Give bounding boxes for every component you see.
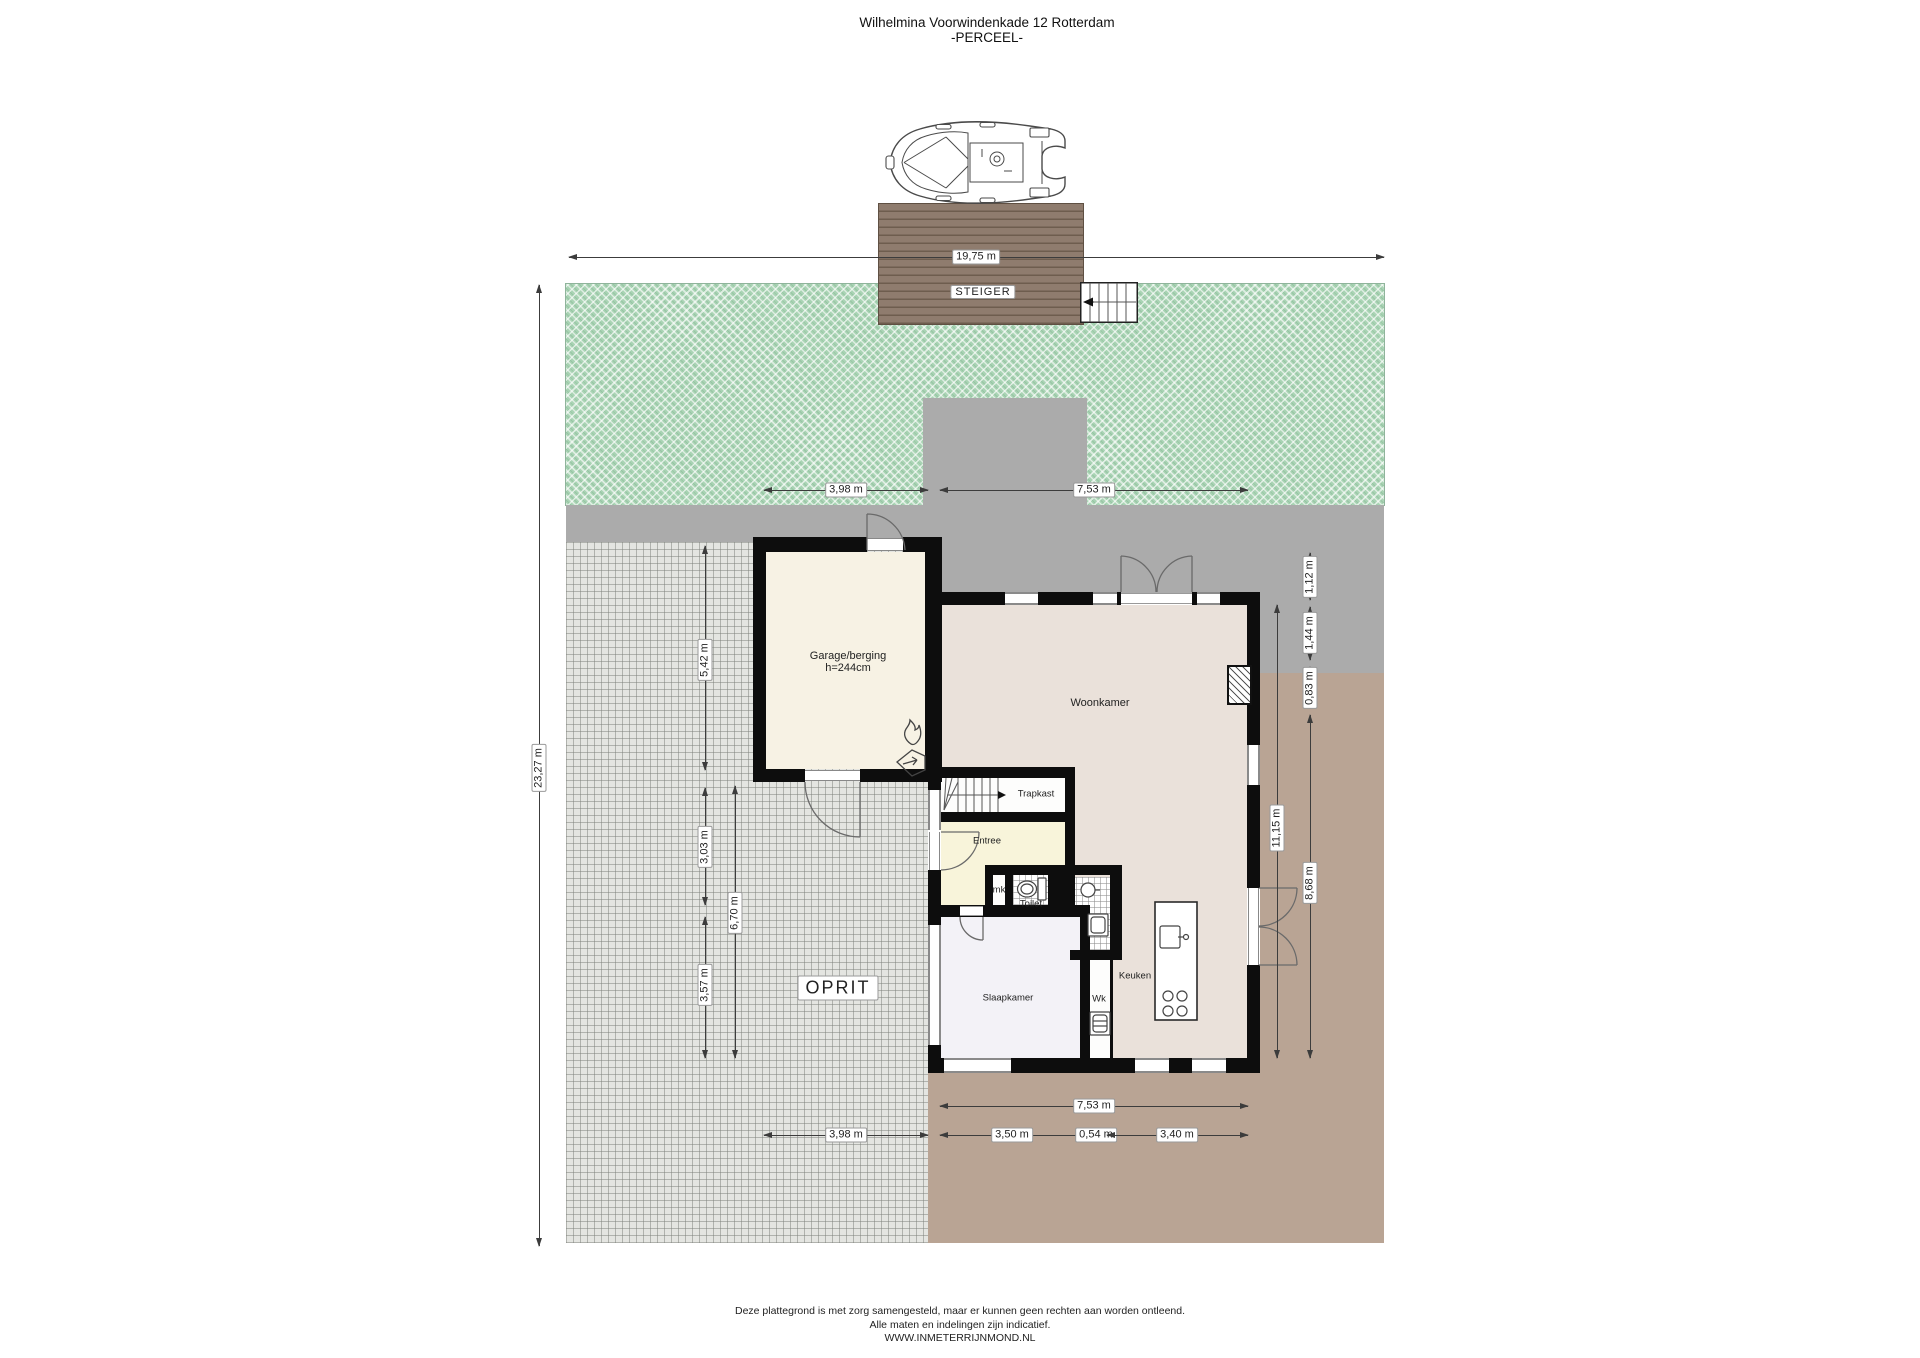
footer-disclaimer: Deze plattegrond is met zorg samengestel… [0,1305,1920,1346]
chimney-hatch-icon [1227,665,1252,705]
title-subtitle: -PERCEEL- [859,30,1114,45]
dim-right-offset-2: 1,44 m [1303,612,1318,654]
dim-right-house-height: 11,15 m [1270,805,1285,852]
wall [1011,1058,1135,1073]
dim-left-total-height: 6,70 m [728,892,743,934]
title-address: Wilhelmina Voorwindenkade 12 Rotterdam [859,15,1114,30]
window [1247,745,1260,785]
window [928,790,941,830]
dim-bedroom-width: 3,50 m [991,1128,1033,1143]
garage-height-note: h=244cm [810,662,886,674]
steiger-label: STEIGER [950,285,1015,299]
wall-bedroom-right [1080,917,1090,1058]
dim-right-offset-3: 0,83 m [1303,667,1318,709]
garage-label: Garage/berging h=244cm [810,650,886,674]
livingroom-doors-opening [1121,593,1192,604]
wall [928,767,941,790]
wall [1226,1058,1260,1073]
dim-garage-top-width: 3,98 m [825,483,867,498]
wall-wk-right [1110,960,1113,1058]
wall [1247,965,1260,1073]
window [1093,592,1117,605]
floorplan-page: Wilhelmina Voorwindenkade 12 Rotterdam -… [0,0,1920,1358]
window [1005,592,1038,605]
wall [925,537,942,782]
dim-garage-height: 5,42 m [698,639,713,681]
wall-staircloset-top [941,767,1075,778]
dim-bedroom-height: 3,57 m [698,964,713,1006]
oprit-label: OPRIT [797,976,878,1001]
entree-floor-lower [941,865,985,905]
dim-kitchen-width: 3,40 m [1156,1128,1198,1143]
woonkamer-label: Woonkamer [1070,697,1129,709]
dim-right-offset-1: 1,12 m [1303,556,1318,598]
wall [753,769,805,782]
footer-website: WWW.INMETERRIJNMOND.NL [0,1332,1920,1346]
dim-plot-height: 23,27 m [532,744,547,792]
dim-water-width: 19,75 m [952,250,1000,265]
wall [753,537,867,552]
page-title: Wilhelmina Voorwindenkade 12 Rotterdam -… [859,15,1114,45]
window [944,1058,1011,1073]
window [1192,1058,1226,1073]
dim-garage-bottom-width: 3,98 m [825,1128,867,1143]
wall-mk-right [1005,868,1013,912]
wall [941,592,1005,605]
window [928,925,941,1045]
wall [1169,1058,1192,1073]
slaapkamer-label: Slaapkamer [983,993,1034,1004]
entree-floor-upper [941,822,1068,868]
wall [1038,592,1093,605]
wk-floor [1090,960,1110,1058]
wall [1247,785,1260,888]
garage-name: Garage/berging [810,650,886,662]
wall [753,537,766,782]
wk-label: Wk [1092,994,1106,1005]
bedroom-door-opening [960,906,983,916]
garage-side-door-opening [805,770,860,781]
wall-staircloset-bottom [941,812,1075,822]
mk-label: mk [993,885,1006,896]
wall-shower-bottom [1070,950,1122,960]
front-door-opening [929,832,940,870]
boat-icon [884,119,1070,206]
window [1197,592,1220,605]
wall [928,870,941,925]
road-strip [566,505,1384,545]
dim-house-bottom-width: 7,53 m [1073,1099,1115,1114]
dim-right-lower-height: 8,68 m [1303,862,1318,904]
garage-front-door-opening [867,538,903,551]
entree-label: Entree [973,836,1001,847]
bedroom-floor [941,917,1080,1058]
toilet-label: Toilet [1020,899,1042,910]
trapkast-label: Trapkast [1018,789,1055,800]
keuken-label: Keuken [1119,971,1151,982]
wall-toilet-right [1048,868,1070,917]
dim-house-top-width: 7,53 m [1073,483,1115,498]
kitchen-doors-opening [1248,888,1259,965]
dock-stairs-icon [1080,282,1138,323]
footer-line-1: Deze plattegrond is met zorg samengestel… [0,1305,1920,1319]
footer-line-2: Alle maten en indelingen zijn indicatief… [0,1319,1920,1333]
terrace-right [1260,673,1384,1243]
wall-shower-right [1110,868,1122,960]
wall [928,1045,941,1073]
dim-midleft-height: 3,03 m [698,826,713,868]
window [1135,1058,1169,1073]
